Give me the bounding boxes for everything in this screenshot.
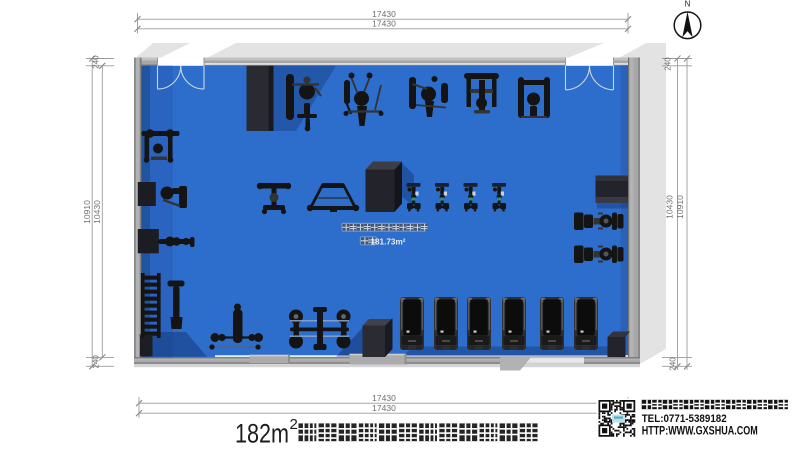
svg-text:10430: 10430 (92, 200, 102, 224)
svg-text:240: 240 (669, 357, 678, 371)
svg-text:240: 240 (92, 55, 101, 69)
svg-text:TEL:0771-5389182: TEL:0771-5389182 (642, 413, 727, 425)
svg-text:240: 240 (92, 355, 101, 369)
svg-text:10430: 10430 (665, 195, 675, 219)
svg-text:10910: 10910 (82, 200, 92, 224)
svg-text:17430: 17430 (372, 403, 396, 413)
svg-text:182m: 182m (235, 419, 289, 449)
svg-text:17430: 17430 (372, 9, 396, 19)
svg-text:2: 2 (290, 416, 298, 433)
svg-text:181.73m²: 181.73m² (370, 238, 405, 247)
svg-text:17430: 17430 (372, 393, 396, 403)
svg-text:HTTP:WWW.GXSHUA.COM: HTTP:WWW.GXSHUA.COM (642, 426, 758, 438)
svg-text:N: N (685, 0, 691, 9)
svg-text:240: 240 (664, 57, 673, 71)
svg-text:10910: 10910 (675, 195, 685, 219)
svg-text:17430: 17430 (372, 19, 396, 29)
